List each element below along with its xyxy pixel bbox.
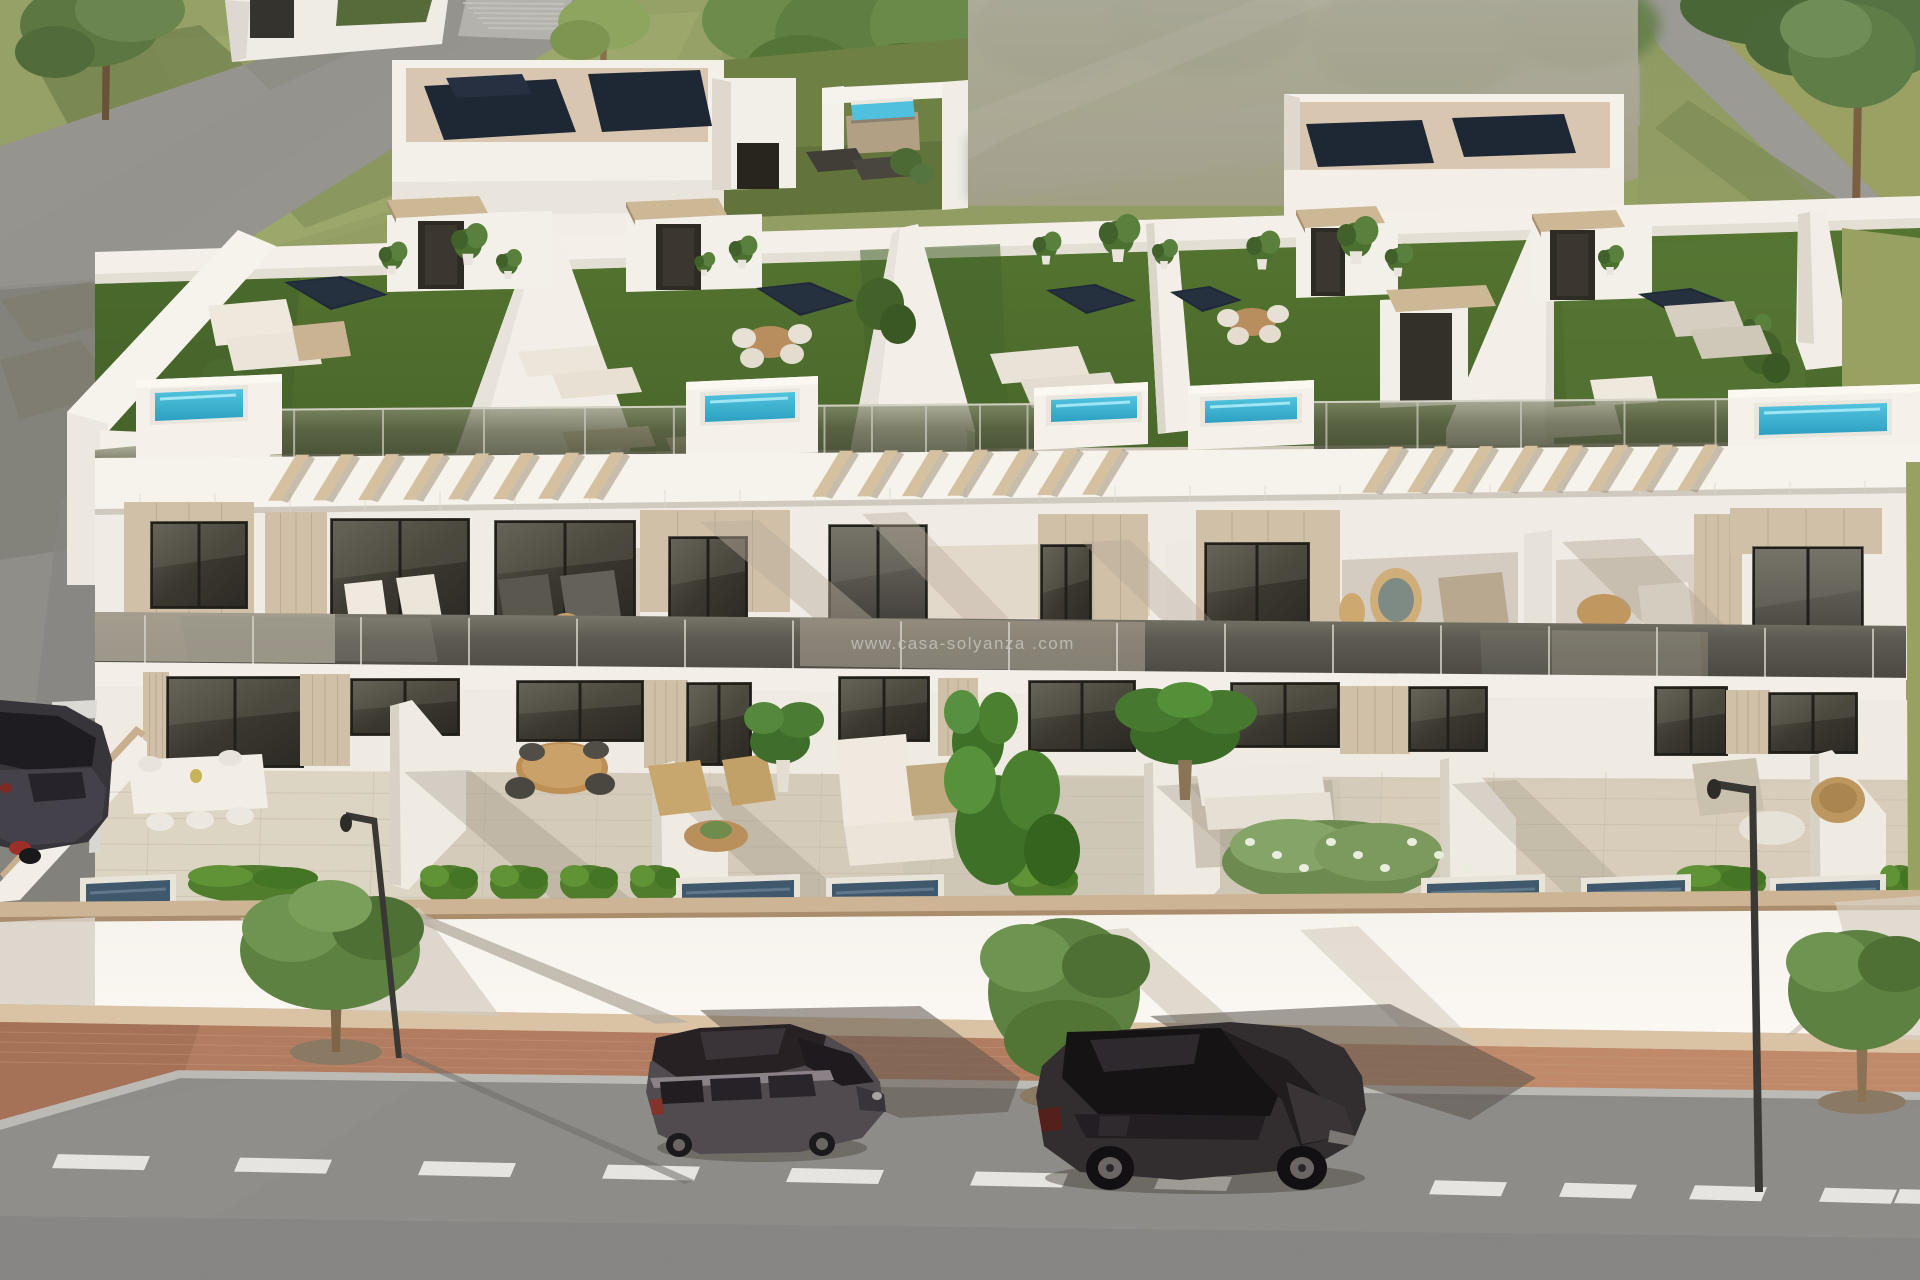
svg-text:www.casa-solyanza .com: www.casa-solyanza .com xyxy=(850,634,1075,653)
